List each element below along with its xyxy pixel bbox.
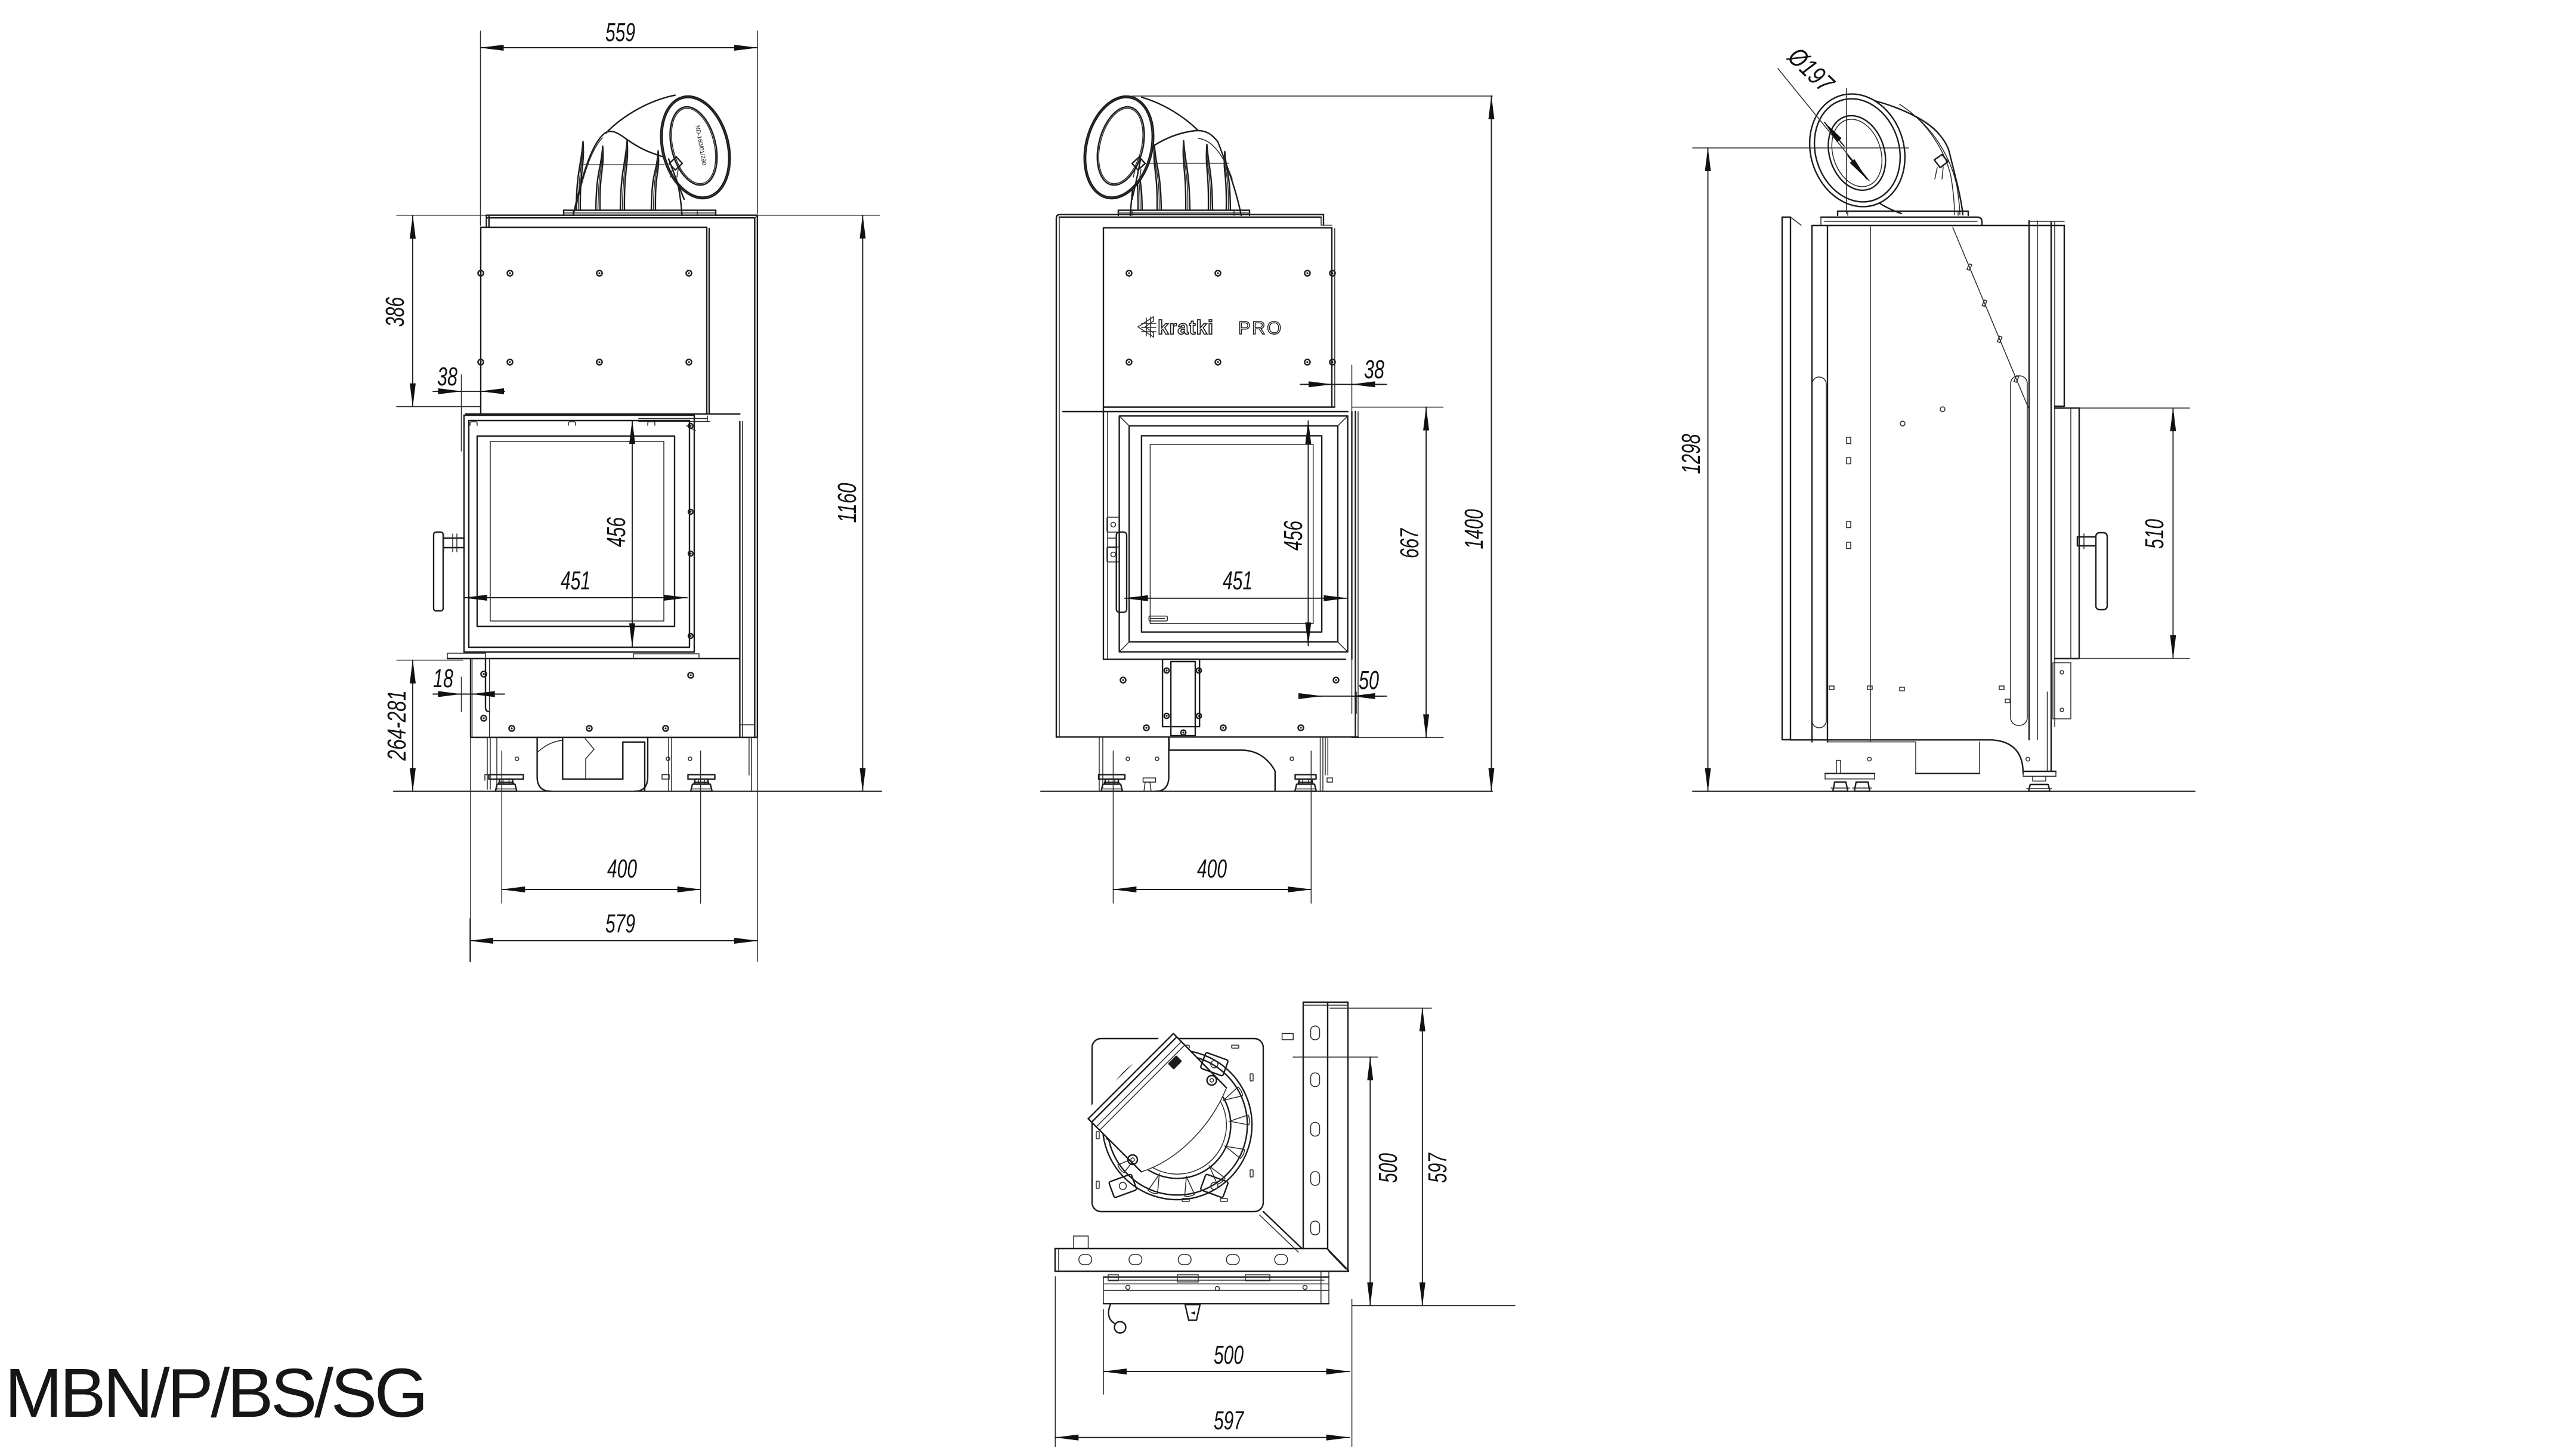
svg-text:559: 559 [605, 18, 635, 47]
svg-text:18: 18 [433, 664, 453, 693]
svg-text:500: 500 [1214, 1340, 1244, 1370]
svg-text:597: 597 [1214, 1406, 1244, 1435]
svg-text:456: 456 [602, 517, 631, 547]
svg-text:38: 38 [1364, 355, 1384, 384]
svg-text:667: 667 [1395, 528, 1424, 558]
svg-text:579: 579 [605, 909, 635, 938]
svg-text:510: 510 [2140, 519, 2169, 549]
svg-text:1400: 1400 [1459, 509, 1489, 549]
svg-text:50: 50 [1359, 666, 1379, 695]
svg-text:264-281: 264-281 [382, 690, 412, 761]
svg-text:456: 456 [1279, 521, 1308, 551]
svg-text:451: 451 [561, 566, 590, 595]
svg-text:597: 597 [1423, 1153, 1452, 1183]
svg-text:500: 500 [1374, 1153, 1403, 1183]
svg-text:kratki: kratki [1158, 316, 1214, 338]
svg-text:1160: 1160 [833, 483, 862, 523]
svg-text:451: 451 [1223, 566, 1253, 595]
svg-text:38: 38 [437, 362, 457, 391]
svg-text:PRO: PRO [1238, 317, 1283, 338]
svg-text:386: 386 [381, 297, 410, 327]
svg-text:400: 400 [607, 854, 637, 883]
svg-text:MBN/P/BS/SG: MBN/P/BS/SG [5, 1354, 428, 1432]
svg-text:1298: 1298 [1677, 434, 1706, 474]
svg-text:400: 400 [1197, 854, 1227, 883]
